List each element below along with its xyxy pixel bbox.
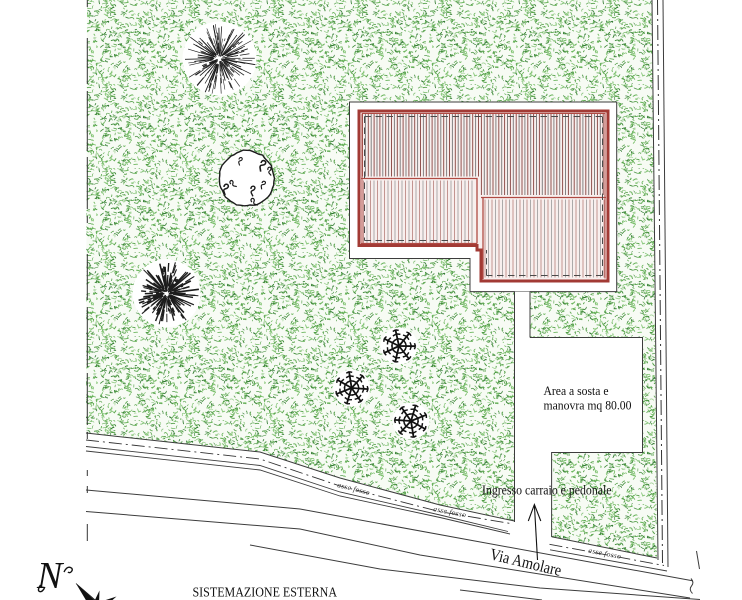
svg-text:N: N xyxy=(36,555,65,597)
svg-text:SISTEMAZIONE ESTERNA: SISTEMAZIONE ESTERNA xyxy=(193,585,338,600)
svg-text:Area a sosta e: Area a sosta e xyxy=(544,383,609,398)
svg-text:Ingresso carraio e pedonale: Ingresso carraio e pedonale xyxy=(482,483,612,498)
svg-text:manovra mq 80.00: manovra mq 80.00 xyxy=(544,398,632,413)
